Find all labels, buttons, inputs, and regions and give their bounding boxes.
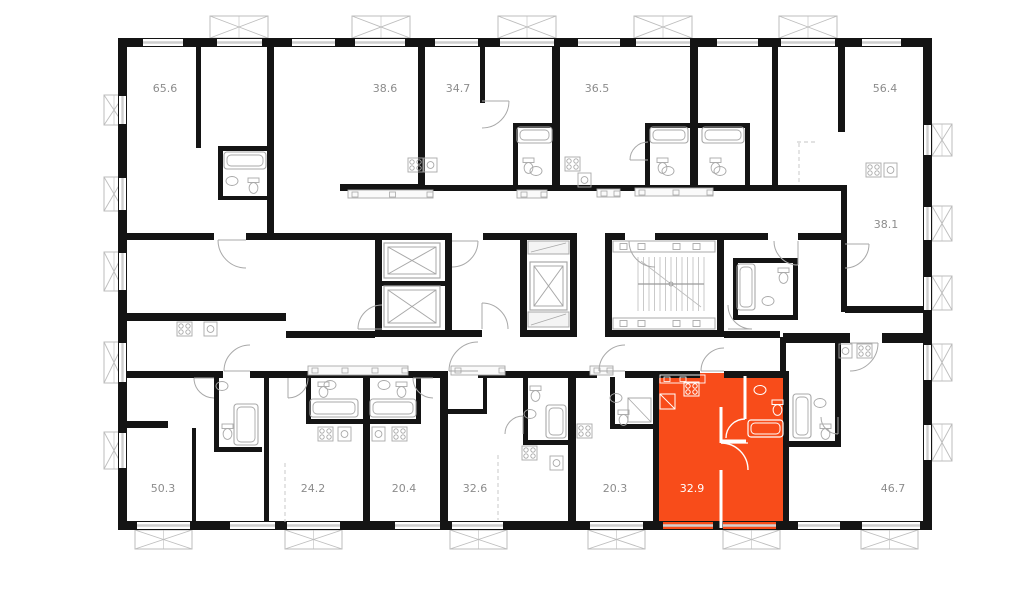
balcony-icon [588,530,645,549]
elevator-shaft-icon [384,243,440,278]
toilet-icon [778,268,789,283]
apartment-unit-46-7[interactable]: 46.7 [789,343,923,521]
unit-click-area[interactable] [126,47,267,331]
door-arc-icon [224,345,250,371]
apartment-unit-24-2[interactable]: 24.2 [269,378,363,521]
balcony-icon [932,206,952,241]
apartment-unit-32-9[interactable]: 32.9 [659,373,783,521]
door-arc-icon [701,348,724,371]
balcony-icon [861,530,918,549]
balcony-icon [634,16,692,38]
unit-area-label: 24.2 [301,482,326,495]
unit-click-area[interactable] [370,378,440,521]
balcony-icon [932,124,952,156]
sink-icon [762,297,774,306]
door-arc-icon [452,241,478,267]
apartment-unit-50-3[interactable]: 50.3 [126,378,264,521]
balcony-icon [450,530,507,549]
apartment-unit-34-7[interactable]: 34.7 [425,47,552,184]
bathtub-icon [702,127,744,143]
unit-click-area[interactable] [659,373,783,521]
apartment-unit-20-3[interactable]: 20.3 [576,378,657,521]
balcony-icon [498,16,556,38]
door-arc-icon [482,303,508,329]
apartment-unit-32-6[interactable]: 32.6 [448,378,568,521]
balcony-icon [932,344,952,381]
unit-area-label: 36.5 [585,82,610,95]
balcony-icon [723,530,780,549]
apartment-unit-38-1[interactable]: 38.1 [847,192,923,306]
unit-click-area[interactable] [126,378,264,521]
unit-click-area[interactable] [576,378,657,521]
balcony-icon [352,16,410,38]
staircase [613,241,715,329]
balcony-icon [135,530,192,549]
unit-area-label: 32.6 [463,482,488,495]
door-arc-icon [629,241,655,267]
unit-area-label: 46.7 [881,482,906,495]
unit-area-label: 20.3 [603,482,628,495]
balcony-icon [210,16,268,38]
unit-click-area[interactable] [560,47,690,184]
unit-click-area[interactable] [448,378,568,521]
toilet-icon [710,158,721,173]
unit-click-area[interactable] [425,47,552,184]
balcony-icon [779,16,837,38]
floorplan-svg: 65.638.634.736.556.438.150.324.220.432.6… [0,0,1024,602]
balcony-icon [932,276,952,310]
unit-area-label: 38.6 [373,82,398,95]
apartment-unit-20-4[interactable]: 20.4 [370,378,440,521]
balcony-icon [285,530,342,549]
apartment-unit-38-6[interactable]: 38.6 [274,47,418,184]
unit-area-label: 50.3 [151,482,176,495]
unit-area-label: 32.9 [680,482,705,495]
elevator-shaft-icon [530,262,567,310]
unit-area-label: 65.6 [153,82,178,95]
unit-area-label: 20.4 [392,482,417,495]
unit-click-area[interactable] [269,378,363,521]
balcony-icon [932,424,952,461]
apartment-unit-36-5[interactable]: 36.5 [560,47,690,184]
floorplan-stage: 65.638.634.736.556.438.150.324.220.432.6… [0,0,1024,602]
unit-click-area[interactable] [274,47,418,184]
elevator-shaft-icon [384,286,440,327]
unit-area-label: 56.4 [873,82,898,95]
unit-click-area[interactable] [847,192,923,306]
unit-area-label: 38.1 [874,218,899,231]
apartment-unit-65-6[interactable]: 65.6 [126,47,267,331]
unit-area-label: 34.7 [446,82,471,95]
service-strips [308,188,713,375]
bathtub-icon [737,264,755,310]
